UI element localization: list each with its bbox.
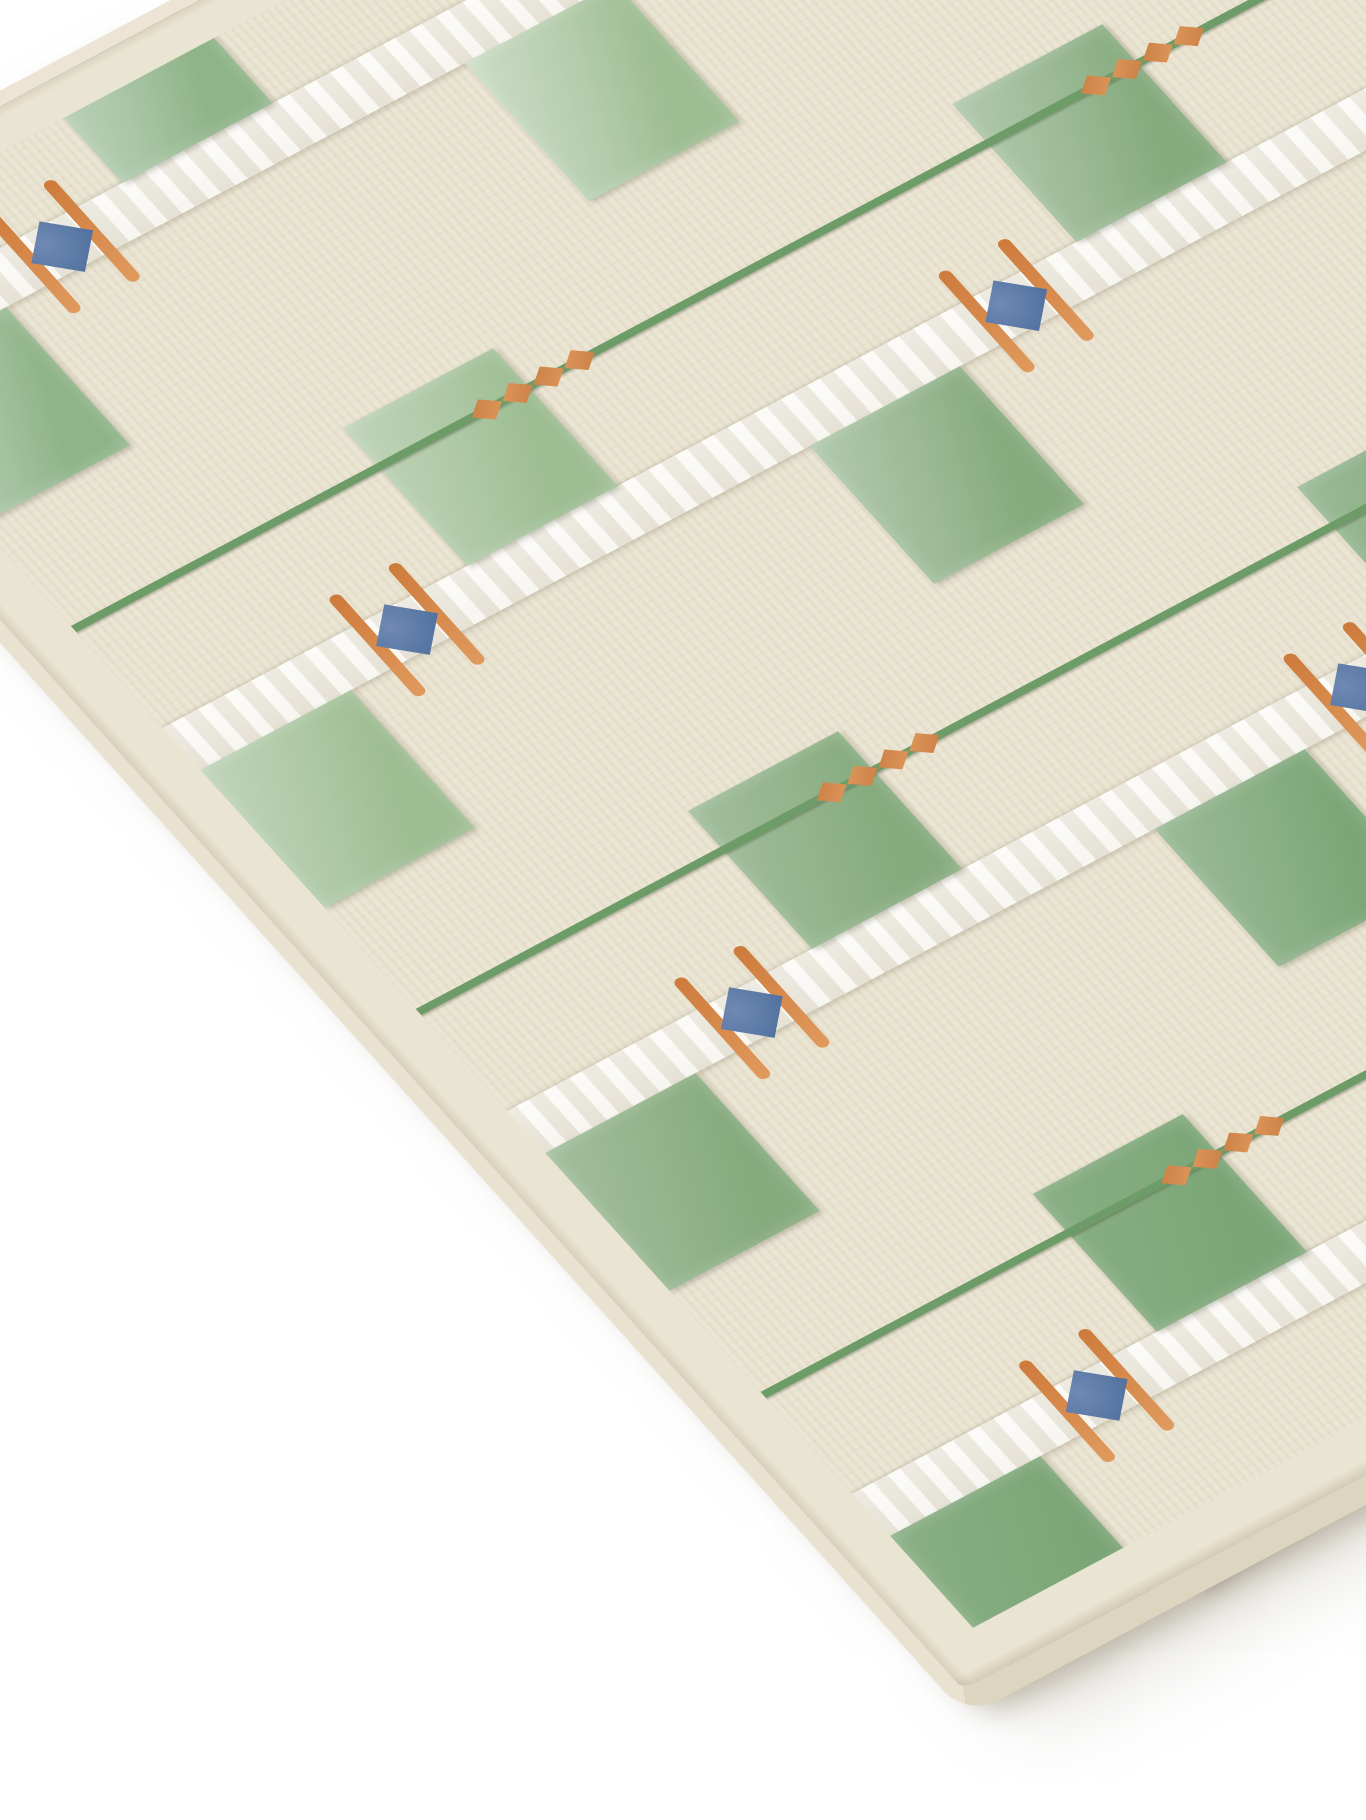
copper-diamond-icon: [1134, 35, 1182, 71]
copper-diamond-icon: [869, 742, 917, 778]
copper-diamond-icon: [1214, 1124, 1262, 1160]
photo-backdrop: HATSUTM: [0, 0, 1366, 1820]
copper-diamond-icon: [525, 359, 573, 395]
rug: [0, 0, 1366, 1717]
green-block: [0, 307, 130, 525]
